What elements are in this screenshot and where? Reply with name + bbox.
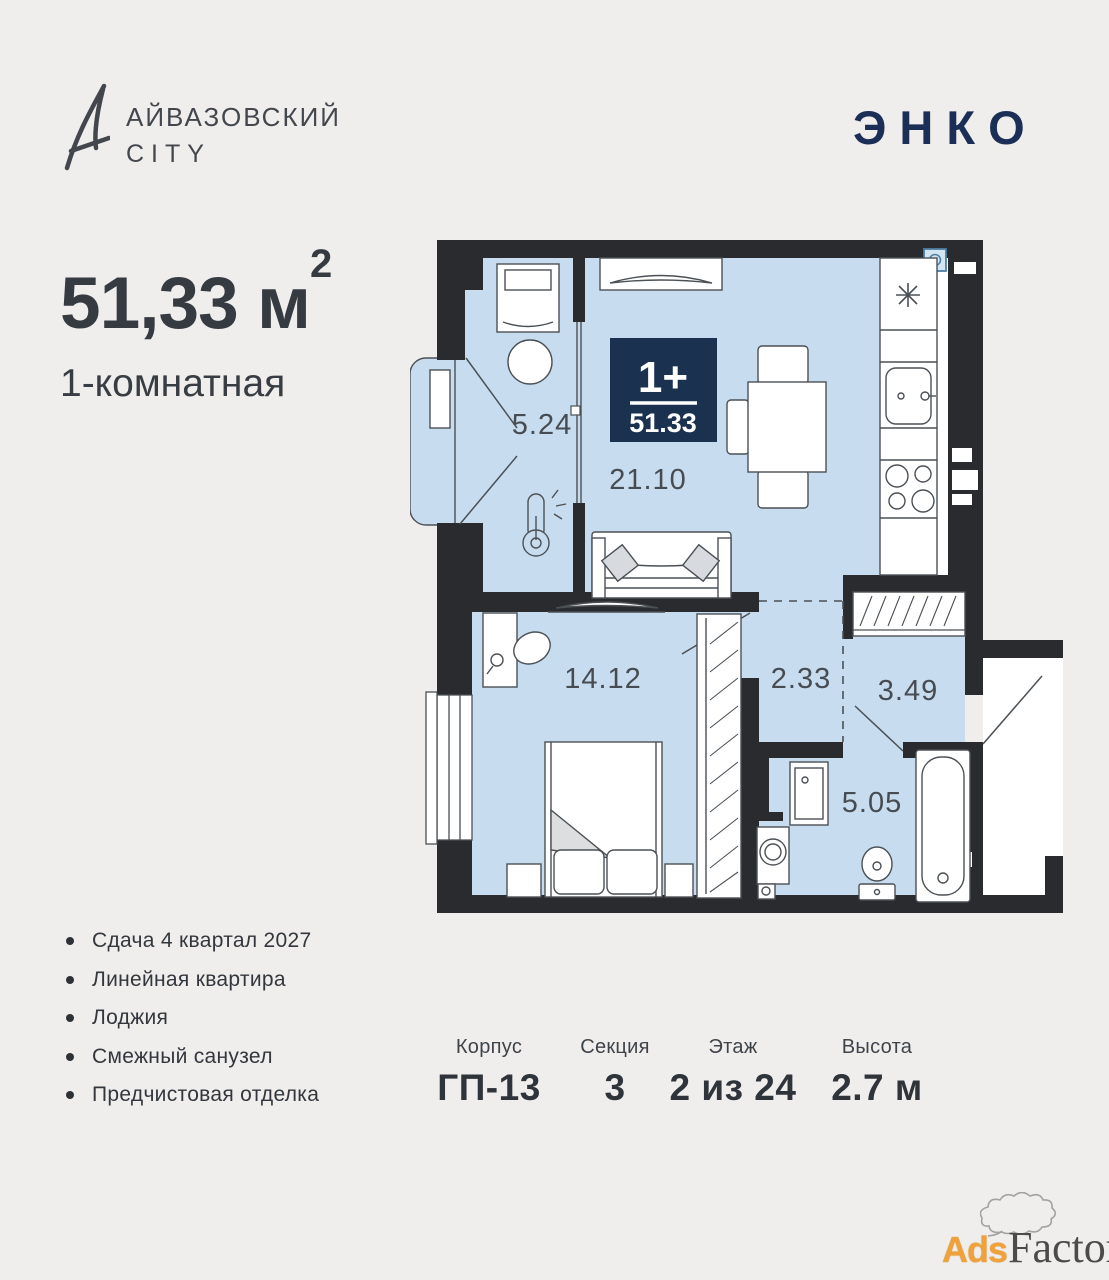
detail-korpus: Корпус ГП-13: [437, 1036, 541, 1109]
closet-icon: [853, 592, 965, 636]
watermark-ads: Ads: [942, 1229, 1007, 1270]
brand-letter-icon: [60, 82, 110, 174]
kitchen-counter: [880, 258, 937, 575]
room-label-bathroom: 5.05: [842, 787, 902, 819]
armchair-icon: [497, 264, 559, 332]
tv-stand-icon: [600, 258, 722, 290]
details-bar: Корпус ГП-13 Секция 3 Этаж 2 из 24 Высот…: [0, 1036, 1109, 1126]
room-label-loggia: 5.24: [512, 409, 572, 441]
round-table-icon: [508, 340, 552, 384]
watermark: AdsFactory: [942, 1192, 1107, 1277]
feature-item: Линейная квартира: [64, 961, 319, 1000]
brand-logo: АЙВАЗОВСКИЙ CITY: [60, 82, 341, 174]
water-heater-icon: [790, 762, 828, 825]
floor-plan: 5.24 21.10 14.12 2.33 3.49 5.05 1+ 51.33: [410, 232, 1070, 924]
room-label-hall: 2.33: [771, 663, 831, 695]
feature-item: Сдача 4 квартал 2027: [64, 922, 319, 961]
sink-icon: [886, 368, 936, 424]
room-label-bedroom: 14.12: [564, 663, 642, 695]
wardrobe-icon: [697, 614, 741, 898]
bullet-icon: [66, 937, 74, 945]
sofa-icon: [592, 532, 731, 598]
toilet-icon: [859, 847, 895, 900]
room-label-corridor: 3.49: [878, 675, 938, 707]
brand-city: CITY: [126, 140, 341, 169]
brand-name: АЙВАЗОВСКИЙ: [126, 102, 341, 133]
developer-logo: ЭНКО: [853, 100, 1038, 155]
bullet-icon: [66, 1014, 74, 1022]
bedroom-window: [426, 692, 472, 844]
badge-area: 51.33: [629, 408, 697, 438]
nightstand-icon: [665, 864, 693, 897]
bed-icon: [545, 742, 662, 897]
bathtub-icon: [916, 750, 970, 902]
total-area: 51,33 м2: [60, 262, 331, 345]
bullet-icon: [66, 976, 74, 984]
feature-item: Лоджия: [64, 999, 319, 1038]
apartment-badge: 1+ 51.33: [610, 338, 717, 442]
detail-etazh: Этаж 2 из 24: [670, 1036, 797, 1109]
nightstand-icon: [507, 864, 541, 897]
detail-vysota: Высота 2.7 м: [831, 1036, 923, 1109]
square-exponent: 2: [310, 242, 331, 286]
room-label-kitchen-living: 21.10: [609, 464, 687, 496]
detail-sekciya: Секция 3: [580, 1036, 650, 1109]
loggia-window: [430, 370, 450, 428]
flyer-page: АЙВАЗОВСКИЙ CITY ЭНКО 51,33 м2 1-комнатн…: [0, 0, 1109, 1280]
watermark-factory: Factory: [1008, 1223, 1109, 1272]
snowflake-icon: [896, 283, 920, 307]
apartment-type: 1-комнатная: [60, 362, 285, 406]
badge-rooms: 1+: [638, 353, 688, 402]
